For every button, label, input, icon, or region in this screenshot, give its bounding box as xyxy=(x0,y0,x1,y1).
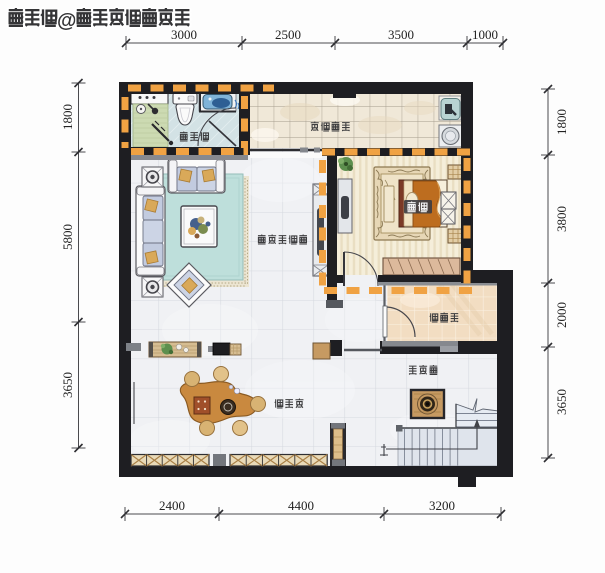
svg-text:1800: 1800 xyxy=(554,109,569,135)
svg-text:3500: 3500 xyxy=(388,27,414,42)
svg-text:1800: 1800 xyxy=(60,104,75,130)
svg-text:3800: 3800 xyxy=(554,206,569,232)
svg-text:2400: 2400 xyxy=(159,498,185,513)
svg-text:1000: 1000 xyxy=(472,27,498,42)
svg-text:@: @ xyxy=(57,10,77,32)
svg-text:3200: 3200 xyxy=(429,498,455,513)
svg-text:3650: 3650 xyxy=(554,389,569,415)
svg-text:2000: 2000 xyxy=(554,302,569,328)
svg-text:4400: 4400 xyxy=(288,498,314,513)
svg-text:3650: 3650 xyxy=(60,372,75,398)
svg-text:3000: 3000 xyxy=(171,27,197,42)
svg-text:5800: 5800 xyxy=(60,224,75,250)
svg-text:2500: 2500 xyxy=(275,27,301,42)
